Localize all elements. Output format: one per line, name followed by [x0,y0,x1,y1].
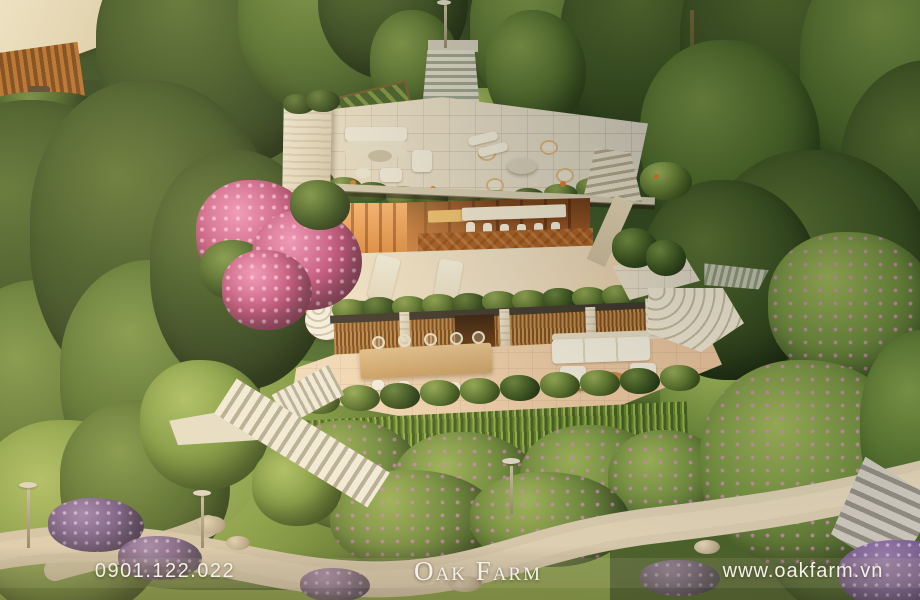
palm-plant [646,240,686,276]
hedge-bush [580,370,620,396]
hedge-bush [500,375,540,401]
rooftop-side-chair [412,150,432,172]
footer-phone: 0901.122.022 [40,560,290,583]
rooftop-sofa [345,127,407,141]
hedge-bush [620,368,660,394]
rooftop-round-table [507,158,537,174]
rooftop-pouf [355,168,371,178]
rooftop-corner-plants [640,162,692,200]
rooftop-coffee-table [368,150,392,162]
dining-chair [450,332,463,345]
garden-lamp-post [201,496,204,548]
chimney-top-plants [306,90,340,112]
hedge-bush [460,378,500,404]
terrace-sofa-seat [552,336,651,363]
garden-lamp-post [444,4,447,48]
planter-flower [560,181,566,187]
garden-lamp-head [193,490,211,496]
garden-lamp-head [19,482,37,488]
dining-chair [398,334,411,347]
rattan-chair [556,168,574,183]
hedge-bush [380,383,420,409]
villa-aerial-render: 0901.122.022 Oak Farm www.oakfarm.vn [0,0,920,600]
rooftop-armchair [380,168,402,182]
garden-lamp-head [502,458,520,464]
hedge-bush [540,372,580,398]
garden-lamp-post [510,466,513,514]
bougainvillea [222,250,312,330]
bougainvillea-foliage [290,180,350,230]
hedge-bush [660,365,700,391]
dining-chair [424,333,437,346]
footer-website: www.oakfarm.vn [690,560,916,583]
dining-chair [372,336,385,349]
rattan-chair [540,140,558,155]
hedge-bush [340,385,380,411]
footer-brand: Oak Farm [362,556,594,587]
garden-lamp-post [27,488,30,548]
planter-flower [654,174,659,179]
hedge-bush [420,380,460,406]
dining-chair [472,331,485,344]
garden-lamp-head [437,0,451,5]
